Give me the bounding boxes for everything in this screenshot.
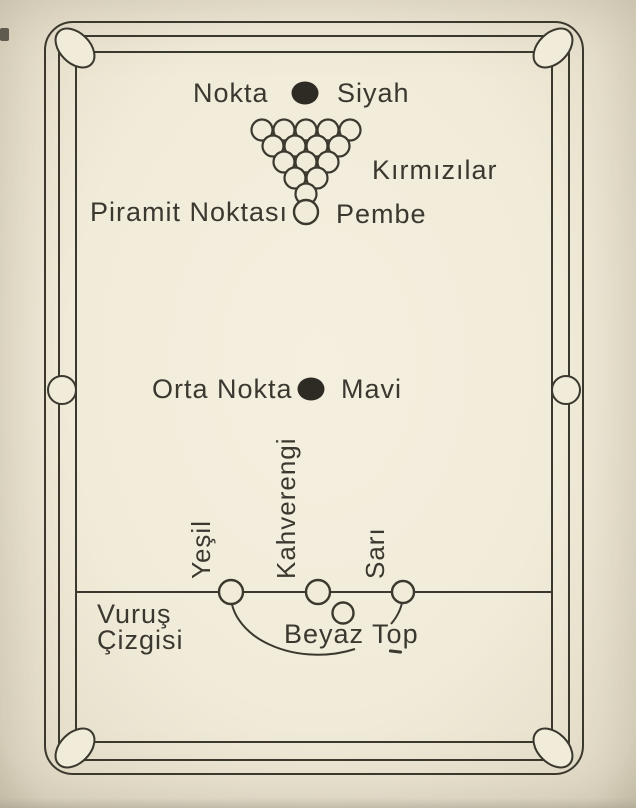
reds-label: Kırmızılar (372, 157, 498, 184)
middle-spot-label: Orta Nokta (152, 376, 293, 403)
blue-ball-label: Mavi (341, 376, 402, 403)
pocket-middle-right (552, 376, 580, 404)
black-ball-label: Siyah (337, 80, 410, 107)
pink-ball (294, 200, 318, 224)
scanned-page: Nokta Siyah Kırmızılar Piramit Noktası P… (0, 0, 636, 808)
black-spot (292, 82, 319, 105)
pocket-bottom-left (48, 721, 102, 775)
green-ball-label: Yeşil (186, 520, 216, 579)
brown-ball-label: Kahverengi (271, 437, 301, 579)
pink-ball-label: Pembe (336, 201, 427, 228)
brown-ball (306, 580, 330, 604)
yellow-ball-label: Sarı (360, 527, 390, 579)
red-balls-group (252, 120, 361, 205)
cue-ball-label: Beyaz Top (284, 621, 419, 648)
pyramid-spot-label: Piramit Noktası (88, 199, 288, 226)
scan-edge-shading (0, 798, 636, 808)
baulk-line-label-1: Vuruş (97, 601, 172, 628)
snooker-table-diagram (0, 0, 636, 808)
baulk-line-label-2: Çizgisi (97, 627, 184, 654)
pocket-top-right (526, 21, 580, 75)
pocket-top-left (48, 21, 102, 75)
top-spot-label: Nokta (193, 80, 269, 107)
blue-spot (298, 378, 325, 401)
yellow-ball (392, 581, 414, 603)
pocket-middle-left (48, 376, 76, 404)
green-ball (219, 580, 243, 604)
pocket-bottom-right (526, 721, 580, 775)
